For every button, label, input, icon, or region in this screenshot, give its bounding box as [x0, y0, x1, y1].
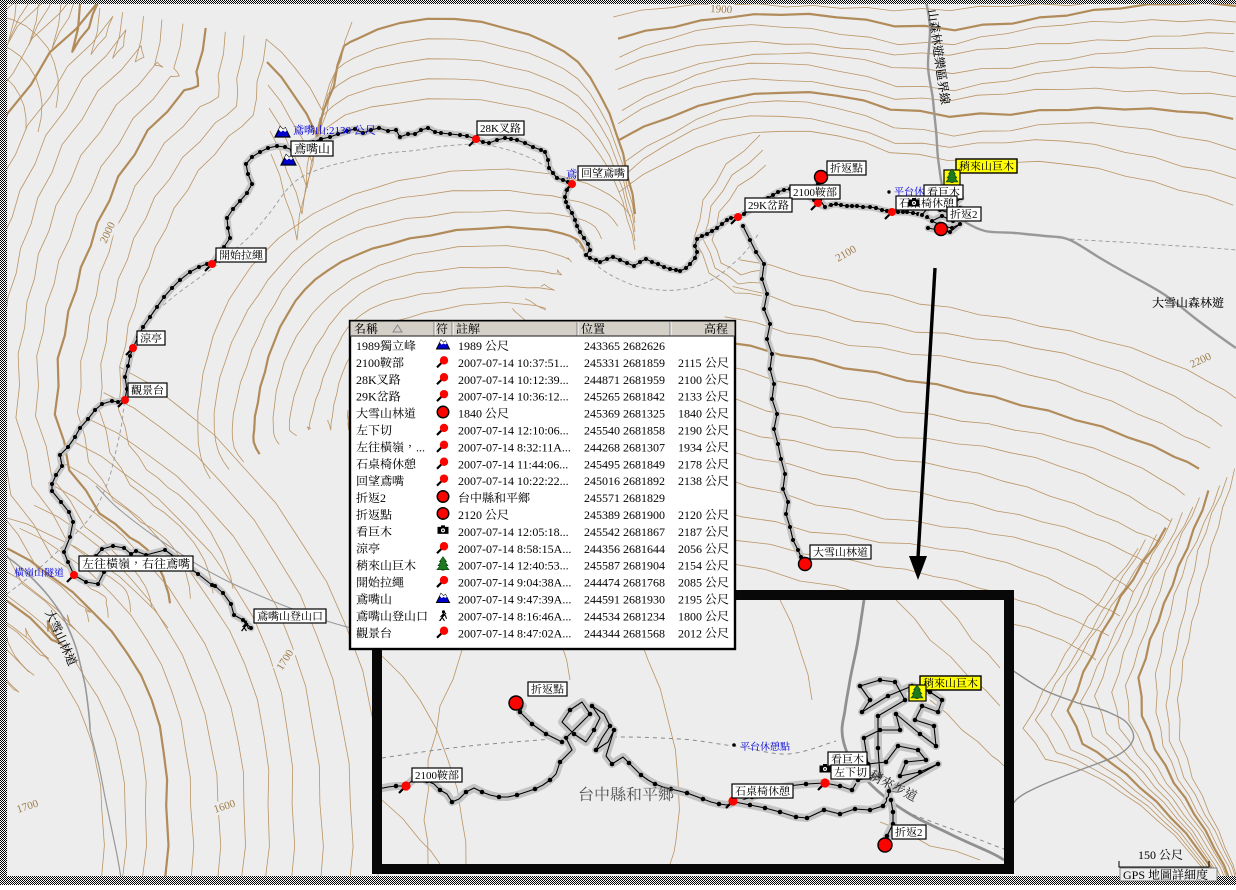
svg-text:2195: 2195 — [678, 593, 705, 607]
svg-text:2007-07-14 12:05:18...: 2007-07-14 12:05:18... — [458, 525, 569, 539]
svg-text:2115: 2115 — [678, 356, 705, 370]
svg-text:245542 2681867: 245542 2681867 — [584, 525, 665, 539]
svg-text:29K: 29K — [748, 200, 767, 212]
svg-text:2007-07-14 12:10:06...: 2007-07-14 12:10:06... — [458, 424, 569, 438]
svg-text:2085: 2085 — [678, 576, 705, 590]
svg-text:1800: 1800 — [678, 609, 705, 623]
svg-text:244474 2681768: 244474 2681768 — [584, 576, 665, 590]
svg-text:150: 150 — [1138, 848, 1159, 862]
svg-text:2007-07-14 10:36:12...: 2007-07-14 10:36:12... — [458, 390, 569, 404]
svg-text:2178: 2178 — [678, 457, 705, 471]
svg-text:2007-07-14 10:12:39...: 2007-07-14 10:12:39... — [458, 373, 569, 387]
svg-text:244356 2681644: 244356 2681644 — [584, 542, 665, 556]
svg-text:244871 2681959: 244871 2681959 — [584, 373, 665, 387]
svg-text:245540 2681858: 245540 2681858 — [584, 424, 665, 438]
svg-text:2007-07-14 8:58:15A...: 2007-07-14 8:58:15A... — [458, 542, 571, 556]
svg-text:28K: 28K — [356, 373, 377, 387]
svg-text::2130: :2130 — [326, 125, 354, 137]
svg-text:2133: 2133 — [678, 390, 705, 404]
svg-text:2007-07-14 12:40:53...: 2007-07-14 12:40:53... — [458, 559, 569, 573]
svg-text:1840: 1840 — [678, 407, 705, 421]
svg-text:2012: 2012 — [678, 626, 705, 640]
svg-text:245571 2681829: 245571 2681829 — [584, 491, 665, 505]
svg-text:2190: 2190 — [678, 424, 705, 438]
svg-text:245369 2681325: 245369 2681325 — [584, 407, 665, 421]
svg-text:245016 2681892: 245016 2681892 — [584, 474, 665, 488]
svg-text:2100: 2100 — [356, 356, 380, 370]
svg-text:243365 2682626: 243365 2682626 — [584, 339, 665, 353]
svg-text:244591 2681930: 244591 2681930 — [584, 593, 665, 607]
svg-text:2007-07-14 10:22:22...: 2007-07-14 10:22:22... — [458, 474, 569, 488]
svg-text:245265 2681842: 245265 2681842 — [584, 390, 665, 404]
svg-text:2056: 2056 — [678, 542, 705, 556]
svg-text:245495 2681849: 245495 2681849 — [584, 457, 665, 471]
svg-text:2007-07-14 9:47:39A...: 2007-07-14 9:47:39A... — [458, 593, 571, 607]
svg-text:GPS: GPS — [1123, 868, 1148, 882]
svg-text:1989: 1989 — [356, 339, 380, 353]
svg-text:2: 2 — [917, 827, 923, 839]
svg-text:2154: 2154 — [678, 559, 705, 573]
svg-text:28K: 28K — [480, 123, 499, 135]
svg-text:244268 2681307: 244268 2681307 — [584, 440, 665, 454]
svg-text:2: 2 — [380, 491, 386, 505]
svg-text:245331 2681859: 245331 2681859 — [584, 356, 665, 370]
svg-text:1934: 1934 — [678, 440, 705, 454]
svg-text:2120: 2120 — [678, 508, 705, 522]
svg-text:...: ... — [416, 440, 425, 454]
svg-text:1900: 1900 — [710, 3, 733, 16]
svg-text:2100: 2100 — [678, 373, 705, 387]
svg-text:2007-07-14 8:16:46A...: 2007-07-14 8:16:46A... — [458, 609, 571, 623]
svg-text:244534 2681234: 244534 2681234 — [584, 609, 665, 623]
svg-text:2007-07-14 8:32:11A...: 2007-07-14 8:32:11A... — [458, 440, 571, 454]
svg-text:2120: 2120 — [458, 508, 485, 522]
svg-text:244344 2681568: 244344 2681568 — [584, 626, 665, 640]
svg-text:29K: 29K — [356, 390, 377, 404]
svg-text:2007-07-14 9:04:38A...: 2007-07-14 9:04:38A... — [458, 576, 571, 590]
svg-text:2007-07-14 10:37:51...: 2007-07-14 10:37:51... — [458, 356, 569, 370]
svg-text:2: 2 — [972, 209, 978, 221]
svg-text:1840: 1840 — [458, 407, 485, 421]
svg-text:2007-07-14 8:47:02A...: 2007-07-14 8:47:02A... — [458, 626, 571, 640]
svg-text:2138: 2138 — [678, 474, 705, 488]
svg-text:2007-07-14 11:44:06...: 2007-07-14 11:44:06... — [458, 457, 568, 471]
svg-text:245389 2681900: 245389 2681900 — [584, 508, 665, 522]
svg-text:1989: 1989 — [458, 339, 485, 353]
svg-text:2100: 2100 — [793, 187, 816, 199]
svg-text:2100: 2100 — [415, 770, 438, 782]
svg-text:245587 2681904: 245587 2681904 — [584, 559, 665, 573]
svg-text:2187: 2187 — [678, 525, 705, 539]
